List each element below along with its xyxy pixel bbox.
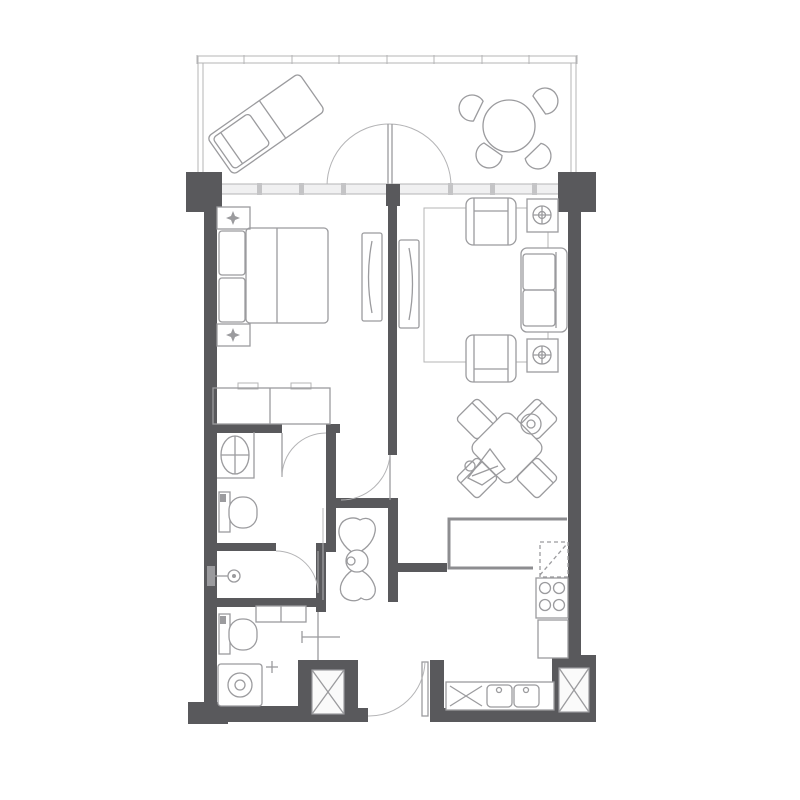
side-table-lamp-south — [527, 339, 558, 372]
bathroom-door — [282, 433, 326, 477]
nightstand-top — [217, 207, 250, 229]
wall-bottom-left — [190, 706, 302, 722]
entry-door — [368, 662, 428, 716]
vanity-sink — [217, 432, 254, 478]
armchair-south — [466, 335, 516, 382]
wall-bath-right-upper — [326, 424, 336, 544]
french-doors — [327, 124, 451, 186]
floor-plan-drawing — [0, 0, 800, 800]
decor-petal-top — [339, 518, 375, 554]
patio-table — [483, 100, 535, 152]
wardrobe-dresser — [213, 383, 330, 424]
pillow — [219, 278, 245, 322]
living-room — [399, 198, 567, 499]
shower-head — [207, 566, 240, 586]
wall-kitchen-stub — [398, 563, 447, 572]
tv-panel-living — [399, 240, 419, 328]
sofa — [521, 248, 567, 332]
floor-plan — [0, 0, 800, 800]
sink-counter — [446, 682, 554, 710]
dining-set — [456, 398, 558, 499]
balcony — [197, 55, 577, 186]
tv-panel-bedroom — [362, 233, 382, 321]
washing-machine — [218, 664, 262, 706]
decor-petal-bottom — [340, 568, 375, 601]
kitchen — [446, 519, 568, 710]
column-top-right — [558, 172, 596, 212]
column-top-left — [186, 172, 222, 212]
counter-segment — [538, 620, 568, 658]
wc-sliding-door — [302, 612, 340, 660]
wall-bedroom-living — [388, 195, 397, 455]
service-shaft-left — [298, 660, 358, 722]
service-shaft-right — [552, 655, 596, 722]
upper-cabinets-dashed — [540, 542, 568, 577]
shower-door — [276, 551, 318, 593]
wall-hall-stub — [330, 498, 398, 508]
wall-bath-shower-divider — [204, 543, 276, 551]
bedroom — [213, 207, 382, 424]
patio-chairs — [455, 83, 563, 174]
chaise-lounge — [207, 73, 325, 175]
shelf — [256, 606, 306, 622]
double-bed — [219, 228, 328, 323]
floor-drain-cross — [266, 661, 278, 673]
hall-door — [341, 455, 390, 500]
shower-room — [207, 566, 240, 586]
cooktop — [536, 578, 568, 618]
side-table-lamp-north — [527, 199, 558, 232]
wall-bedroom-bath — [204, 424, 282, 433]
toilet-2 — [219, 614, 257, 654]
toilet-1 — [219, 492, 257, 532]
bathroom — [217, 432, 326, 593]
wall-foyer-niche — [388, 508, 398, 602]
nightstand-bottom — [217, 324, 250, 346]
pillow — [219, 231, 245, 275]
armchair-north — [466, 198, 516, 245]
wall-left — [204, 210, 217, 710]
kitchen-counter-bar — [449, 519, 567, 568]
wall-right — [568, 210, 581, 660]
